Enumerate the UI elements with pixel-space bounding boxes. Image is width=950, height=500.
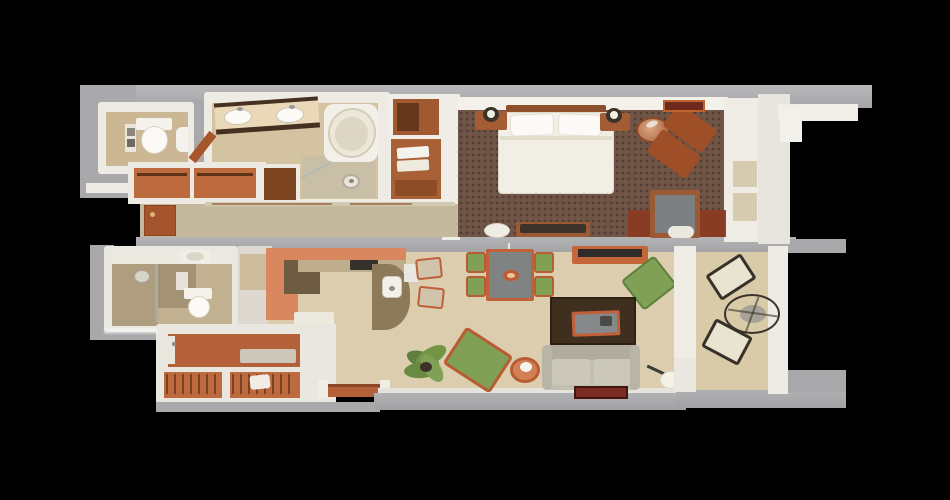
window-seat-panel-2	[732, 192, 758, 222]
closet-cabinet-upper-shelves	[397, 103, 419, 131]
track-rail-1	[212, 203, 332, 205]
kitchen-faucet	[389, 286, 395, 291]
bed-bench-top	[520, 224, 586, 233]
sofa-back	[542, 345, 640, 360]
closet-towel-2	[397, 159, 430, 172]
corridor-door-handle	[150, 212, 155, 217]
wall-step-bottom-right	[786, 370, 846, 392]
top-right-wall-corner	[780, 108, 802, 142]
faucet-left	[237, 107, 243, 111]
window-seat-panel-1	[732, 160, 758, 188]
floor-plan	[0, 0, 950, 500]
entry-door-edge	[328, 384, 380, 387]
dining-chair-r1	[534, 252, 554, 273]
dining-bowl-inner	[507, 273, 515, 278]
lamp-left-shade	[487, 110, 495, 118]
bottom-wall-main	[374, 393, 686, 410]
corridor-door	[144, 205, 176, 236]
bedroom-pouf	[484, 223, 510, 238]
coffee-table	[572, 310, 621, 337]
sofa-arm-right	[630, 345, 640, 390]
toilet-shelf-item-2	[127, 139, 135, 147]
faucet-right	[289, 105, 295, 109]
shower-drain-dot	[349, 179, 354, 183]
coffee-table-item	[600, 316, 612, 326]
balcony-divider-shelf	[674, 358, 696, 392]
bed-pillow-right	[558, 113, 603, 137]
closet-drawers	[395, 180, 437, 196]
dining-chair-l2	[466, 276, 486, 297]
corridor-floor	[140, 204, 458, 237]
dining-chair-r2	[534, 276, 554, 297]
toilet-corner-sink	[176, 127, 188, 152]
bath2-glass	[155, 264, 158, 322]
bed-blanket-fold	[500, 136, 612, 140]
door-mat	[574, 386, 628, 399]
hall-dresser	[264, 168, 296, 200]
sofa-cushion-1	[552, 359, 590, 385]
shower2-head-dot	[140, 274, 144, 278]
bar-stool-1	[415, 257, 443, 281]
sofa-arm-left	[542, 345, 552, 390]
watermark	[104, 328, 158, 334]
desk-chair	[668, 226, 694, 238]
shower-floor	[302, 156, 376, 198]
wall-stub-right-lower	[788, 239, 846, 253]
balcony-curtain-divider	[674, 246, 696, 362]
closet-towel-1	[397, 146, 430, 159]
foyer-door-leaf	[168, 336, 175, 364]
wall-picture	[663, 100, 705, 112]
toilet-bowl	[141, 126, 168, 154]
dining-chair-l1	[466, 252, 486, 273]
wall-endcap-upper-left	[86, 183, 128, 193]
side-table-flower	[520, 362, 532, 372]
sofa-cushion-2	[594, 359, 632, 385]
foyer-closet-linens	[249, 374, 270, 390]
track-rail-2	[350, 203, 412, 205]
plant-pot	[420, 362, 432, 372]
foyer-bottom-wall	[156, 402, 380, 412]
toilet-shelf-item-1	[127, 128, 135, 136]
foyer-door-handle	[172, 342, 176, 346]
foyer-hall-rug	[240, 349, 296, 363]
foyer-closet-1-hangers	[166, 374, 218, 394]
bar-stool-2	[417, 286, 445, 310]
entry-door-jamb-left	[318, 380, 328, 398]
tv-screen	[578, 249, 642, 257]
toilet2-bowl	[188, 296, 210, 318]
bed-pillow-left	[510, 113, 555, 137]
hall-closet-1-rod	[137, 173, 187, 176]
hall-closet-2-rod	[197, 173, 253, 176]
lamp-right-shade	[610, 111, 618, 119]
bath2-sink-basin	[186, 252, 204, 261]
